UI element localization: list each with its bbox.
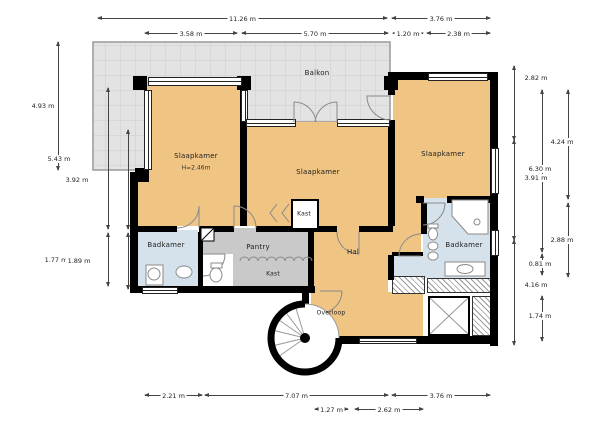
wall-bed-mid-right-lower <box>388 120 395 226</box>
dimension-label: 2.38 m <box>445 30 472 38</box>
dimension-label: 2.88 m <box>549 236 576 244</box>
dimension-line <box>108 88 109 229</box>
dimension-label: 5.70 m <box>302 30 329 38</box>
dimension-label: 2.21 m <box>160 392 187 400</box>
dimension-label: 4.16 m <box>523 281 550 289</box>
dimension-label: 3.91 m <box>523 174 550 182</box>
wall-badkamer-nook <box>198 232 203 286</box>
window-right-bedroom <box>491 148 499 194</box>
balcony-post-1 <box>133 76 147 90</box>
wall-south-bedroom-right-1 <box>416 196 424 203</box>
wall-pantry-hal <box>308 226 314 288</box>
window-bed-left-west <box>144 90 152 170</box>
window-bed-mid-balcony-1 <box>246 119 296 127</box>
window-bottom-left <box>142 287 178 294</box>
dimension-line <box>514 240 515 345</box>
dimension-label: 3.76 m <box>428 15 455 23</box>
shaft-hatched-top <box>427 278 492 293</box>
dimension-line <box>108 233 109 286</box>
dimension-label: 1.20 m <box>395 30 422 38</box>
wall-south-bedrooms-1 <box>130 226 177 232</box>
room-sublabel-slaapkamer-left: H=2.46m <box>182 165 211 172</box>
room-label-kast-bottom: Kast <box>266 271 280 278</box>
window-right-bathroom <box>491 230 499 256</box>
room-badkamer-right-strip <box>393 256 423 276</box>
dimension-label: 3.58 m <box>178 30 205 38</box>
dimension-label: 3.92 m <box>64 176 91 184</box>
dimension-label: 2.82 m <box>523 74 550 82</box>
dimension-label: 11.26 m <box>227 15 258 23</box>
room-badkamer-left <box>137 230 198 286</box>
wall-south-bedroom-right-2 <box>447 196 498 203</box>
dimension-label: 0.81 m <box>527 260 554 268</box>
dimension-label: 1.89 m <box>66 257 93 265</box>
wall-right <box>490 72 498 346</box>
room-label-slaapkamer-right: Slaapkamer <box>421 150 465 158</box>
dimension-label: 4.93 m <box>30 102 57 110</box>
room-label-badkamer-left: Badkamer <box>147 241 184 249</box>
wall-south-bedrooms-2 <box>199 226 234 232</box>
dimension-label: 1.27 m <box>318 406 345 414</box>
dimension-label: 1.74 m <box>527 312 554 320</box>
dimension-label: 2.62 m <box>376 406 403 414</box>
wall-south-bedrooms-4 <box>359 226 393 232</box>
wall-bath-right-west <box>421 203 427 234</box>
window-hal-bottom <box>359 338 417 344</box>
dimension-line <box>514 140 515 240</box>
room-label-balkon: Balkon <box>305 69 330 77</box>
dimension-line <box>58 42 59 170</box>
shaft-hatched-right <box>472 296 492 336</box>
room-label-overloop: Overloop <box>317 310 346 317</box>
wall-overloop-west <box>302 286 309 308</box>
dimension-line <box>128 130 129 229</box>
dimension-label: 5.43 m <box>46 155 73 163</box>
room-slaapkamer-left-lower <box>137 170 240 226</box>
window-bed-mid-balcony-2 <box>337 119 390 127</box>
shaft-hatched-left <box>392 276 425 294</box>
wall-left <box>130 172 138 293</box>
room-wc-nook <box>201 254 233 286</box>
wall-strip-top <box>392 252 423 256</box>
dimension-label: 7.07 m <box>283 392 310 400</box>
room-label-kast-middle: Kast <box>297 211 311 218</box>
dimension-label: 6.30 m <box>527 165 554 173</box>
room-label-hal: Hal <box>347 248 359 256</box>
dimension-line <box>514 66 515 140</box>
dimension-label: 3.76 m <box>428 392 455 400</box>
elevator-cross-icon <box>430 298 468 334</box>
floorplan-canvas: BalkonSlaapkamerH=2.46mSlaapkamerSlaapka… <box>0 0 600 424</box>
room-label-pantry: Pantry <box>246 243 270 251</box>
window-top-right <box>428 73 488 81</box>
balcony-post-4 <box>135 168 149 182</box>
room-hal-corridor <box>347 292 423 338</box>
wall-strip-west <box>388 255 394 280</box>
room-badkamer-right <box>423 198 490 278</box>
room-slaapkamer-right <box>393 78 490 198</box>
room-label-badkamer-right: Badkamer <box>445 241 482 249</box>
room-label-slaapkamer-left: Slaapkamer <box>174 152 218 160</box>
window-bed-left-east <box>241 90 248 122</box>
room-label-slaapkamer-middle: Slaapkamer <box>296 168 340 176</box>
dimension-line <box>128 233 129 289</box>
window-bed-left-top <box>148 77 242 86</box>
elevator-shaft <box>428 296 470 336</box>
balcony-post-3 <box>384 76 398 90</box>
dimension-label: 4.24 m <box>549 138 576 146</box>
